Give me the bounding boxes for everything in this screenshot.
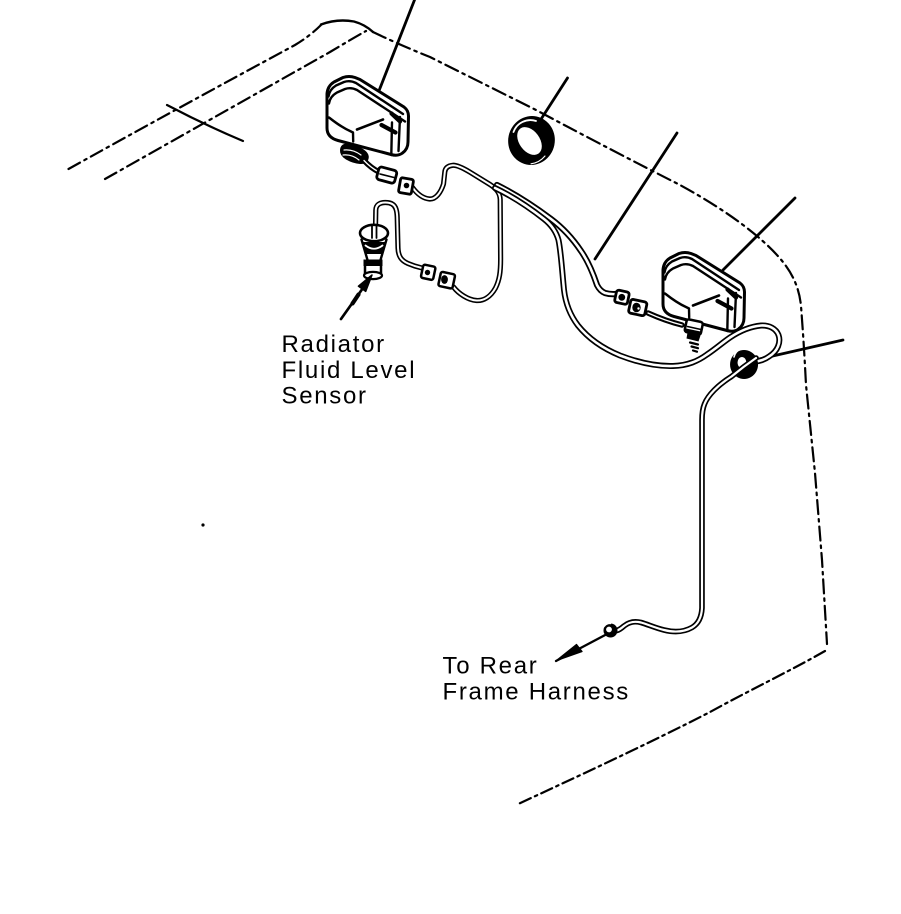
svg-text:Frame Harness: Frame Harness: [443, 679, 630, 706]
svg-text:To Rear: To Rear: [443, 653, 539, 680]
svg-text:Sensor: Sensor: [282, 383, 368, 410]
svg-text:Fluid Level: Fluid Level: [282, 357, 417, 384]
svg-text:Radiator: Radiator: [282, 331, 386, 358]
